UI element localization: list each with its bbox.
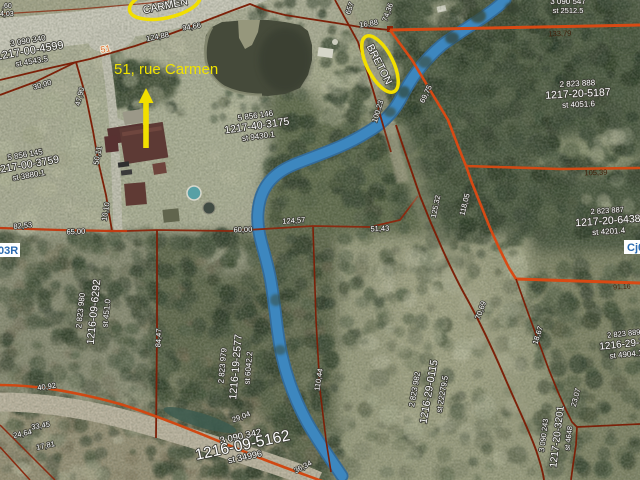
svg-text:51, rue Carmen: 51, rue Carmen (114, 61, 218, 78)
svg-text:Cj0: Cj0 (627, 242, 640, 254)
svg-text:65,00: 65,00 (66, 227, 85, 237)
svg-text:03R: 03R (0, 245, 18, 257)
svg-text:91,16: 91,16 (613, 284, 631, 292)
svg-text:133,79: 133,79 (548, 29, 571, 39)
svg-text:105,39: 105,39 (584, 168, 607, 178)
svg-text:124,57: 124,57 (282, 215, 306, 226)
svg-text:82,53: 82,53 (13, 220, 32, 231)
svg-text:st 4051.6: st 4051.6 (562, 99, 596, 110)
svg-text:,60: ,60 (2, 3, 12, 10)
svg-text:84,47: 84,47 (154, 328, 164, 347)
svg-text:4,03: 4,03 (0, 11, 14, 18)
svg-text:51,43: 51,43 (370, 224, 389, 234)
svg-text:51: 51 (100, 43, 112, 55)
svg-text:st 2512.5: st 2512.5 (553, 6, 584, 15)
svg-text:60,00: 60,00 (233, 225, 252, 235)
